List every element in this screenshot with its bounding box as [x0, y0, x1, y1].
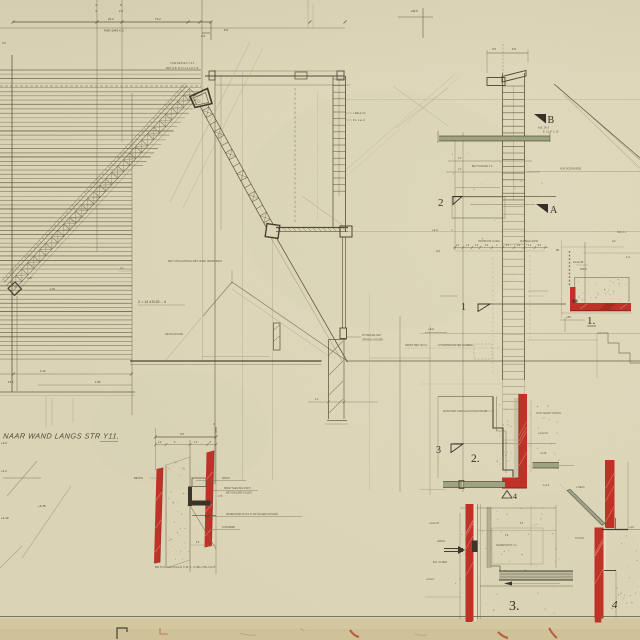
- svg-text:MET DAKLEER VULLEN: MET DAKLEER VULLEN: [226, 492, 252, 495]
- svg-text:SPANT MET W.V.V.: SPANT MET W.V.V.: [405, 343, 428, 347]
- svg-text:LT PERSROOSTER DAKBED: LT PERSROOSTER DAKBED: [438, 343, 473, 347]
- svg-text:6.5: 6.5: [512, 47, 516, 51]
- svg-text:4.05: 4.05: [50, 288, 55, 291]
- svg-text:Z = 14 4.B.52. - 4: Z = 14 4.B.52. - 4: [138, 300, 166, 304]
- svg-text:4+2.4: 4+2.4: [543, 484, 550, 487]
- svg-text:NOK 4.2: NOK 4.2: [617, 231, 627, 234]
- svg-text:8.6: 8.6: [224, 28, 229, 32]
- svg-text:MET N.B. B.VV 2.2.L.D.2.-B: MET N.B. B.VV 2.2.L.D.2.-B: [166, 66, 199, 70]
- svg-text:+2.6+2.8: +2.6+2.8: [429, 522, 439, 525]
- svg-text:+2.4+2.6: +2.4+2.6: [538, 432, 548, 435]
- svg-text:60: 60: [556, 248, 560, 252]
- svg-text:2.6: 2.6: [201, 34, 206, 38]
- svg-text:1.4: 1.4: [626, 255, 630, 259]
- svg-text:+2.15: +2.15: [540, 452, 547, 455]
- svg-text:+4.6: +4.6: [1, 441, 7, 445]
- svg-text:SPANT SLEUVEN 2.5/2.5: SPANT SLEUVEN 2.5/2.5: [224, 487, 251, 490]
- svg-text:1.42: 1.42: [40, 369, 46, 373]
- svg-text:A.B. 19+2: A.B. 19+2: [538, 127, 550, 130]
- svg-text:SPANT: SPANT: [222, 477, 230, 480]
- svg-text:V: V: [213, 422, 215, 426]
- svg-text:B.K. VLOER: B.K. VLOER: [433, 561, 447, 564]
- svg-text:POTDEKSEL MET: POTDEKSEL MET: [362, 335, 382, 337]
- svg-text:ANKER ROND 16 H.O.H. 2M VOLGEN: ANKER ROND 16 H.O.H. 2M VOLGENS OPGAVE: [226, 513, 278, 516]
- svg-text:+60: +60: [566, 315, 571, 319]
- svg-text:4.2: 4.2: [436, 249, 440, 253]
- svg-text:3: 3: [436, 445, 441, 456]
- svg-text:2 8: 2 8: [119, 9, 123, 13]
- svg-text:DUBBELE WAND: DUBBELE WAND: [520, 240, 539, 243]
- svg-text:71.2: 71.2: [155, 17, 161, 21]
- svg-text:BET HANGEN 2.4: BET HANGEN 2.4: [472, 165, 493, 168]
- svg-text:BETON: BETON: [134, 476, 143, 480]
- svg-text:DAKBESCHOT 2.4: DAKBESCHOT 2.4: [496, 544, 517, 547]
- svg-text:+4.4: +4.4: [1, 469, 7, 473]
- svg-text:3.: 3.: [509, 599, 520, 614]
- svg-text:100.5: 100.5: [580, 267, 587, 271]
- svg-text:MET AFSCHUINING MET HOEK V: MET AFSCHUINING MET HOEK VERBINDEN: [168, 259, 222, 263]
- svg-text:1: 1: [461, 302, 466, 313]
- svg-text:4.5: 4.5: [180, 432, 184, 436]
- svg-text:NOK DOORSNEDE: NOK DOORSNEDE: [560, 168, 582, 171]
- svg-text:4: 4: [513, 492, 517, 501]
- svg-text:+4.25: +4.25: [38, 504, 46, 508]
- svg-text:E. 21. P. 2. 19: E. 21. P. 2. 19: [543, 131, 559, 134]
- svg-text:TRAPBOOM VLOER: TRAPBOOM VLOER: [478, 240, 500, 243]
- svg-text:VOIR DETAILS 7.9.1: VOIR DETAILS 7.9.1: [170, 61, 195, 65]
- svg-text:2.: 2.: [471, 453, 480, 465]
- svg-text:4: 4: [612, 599, 618, 611]
- svg-text:21.2: 21.2: [108, 17, 114, 21]
- svg-text:2.2: 2.2: [120, 267, 124, 270]
- svg-text:2.2+2.25: 2.2+2.25: [573, 260, 584, 264]
- svg-text:+2.2+4: +2.2+4: [426, 578, 434, 581]
- svg-text:AANSL.: AANSL.: [437, 540, 446, 543]
- svg-text:3.5: 3.5: [492, 47, 496, 51]
- svg-text:STUCWERK: STUCWERK: [222, 527, 236, 529]
- svg-text:14.5: 14.5: [8, 380, 14, 384]
- svg-text:WAND MET AANSLAG DOORLOPEND: WAND MET AANSLAG DOORLOPEND: [443, 410, 488, 413]
- svg-text:1.: 1.: [587, 315, 596, 327]
- svg-text:L.NEUS: L.NEUS: [576, 486, 585, 489]
- svg-text:STUCW.: STUCW.: [575, 537, 585, 540]
- svg-text:OPENING HOUDEN: OPENING HOUDEN: [362, 340, 384, 342]
- svg-text:A: A: [550, 205, 558, 216]
- svg-text:P.BN 1940 K.S: P.BN 1940 K.S: [104, 29, 124, 33]
- svg-text:DETAILOPGAVE: DETAILOPGAVE: [165, 333, 184, 336]
- svg-text:+39.5: +39.5: [410, 9, 418, 13]
- svg-text:1.65: 1.65: [95, 380, 101, 384]
- svg-text:3.4: 3.4: [2, 41, 6, 45]
- svg-text:L BALK 4.2: L BALK 4.2: [353, 112, 366, 115]
- svg-text:1.75: 1.75: [218, 496, 223, 498]
- svg-text:B: B: [548, 115, 555, 126]
- svg-text:+4.10: +4.10: [1, 516, 9, 520]
- svg-text:4.35: 4.35: [27, 277, 32, 280]
- svg-text:+6.2: +6.2: [428, 327, 434, 331]
- svg-text:2: 2: [438, 197, 444, 209]
- svg-text:4.2: 4.2: [612, 239, 616, 243]
- svg-text:STIJL NAAST KOZIJN: STIJL NAAST KOZIJN: [536, 412, 561, 415]
- svg-text:BETON AANSLAG F.B.V. KIMLIJ: BETON AANSLAG F.B.V. KIMLIJNLICHT: [155, 565, 216, 569]
- svg-text:+2.4: +2.4: [432, 228, 438, 232]
- svg-text:NAAR WAND LANGS STR Y11.: NAAR WAND LANGS STR Y11.: [3, 432, 120, 441]
- svg-text:+2.6: +2.6: [629, 526, 635, 529]
- svg-text:P.L. 2 en 4: P.L. 2 en 4: [353, 119, 365, 122]
